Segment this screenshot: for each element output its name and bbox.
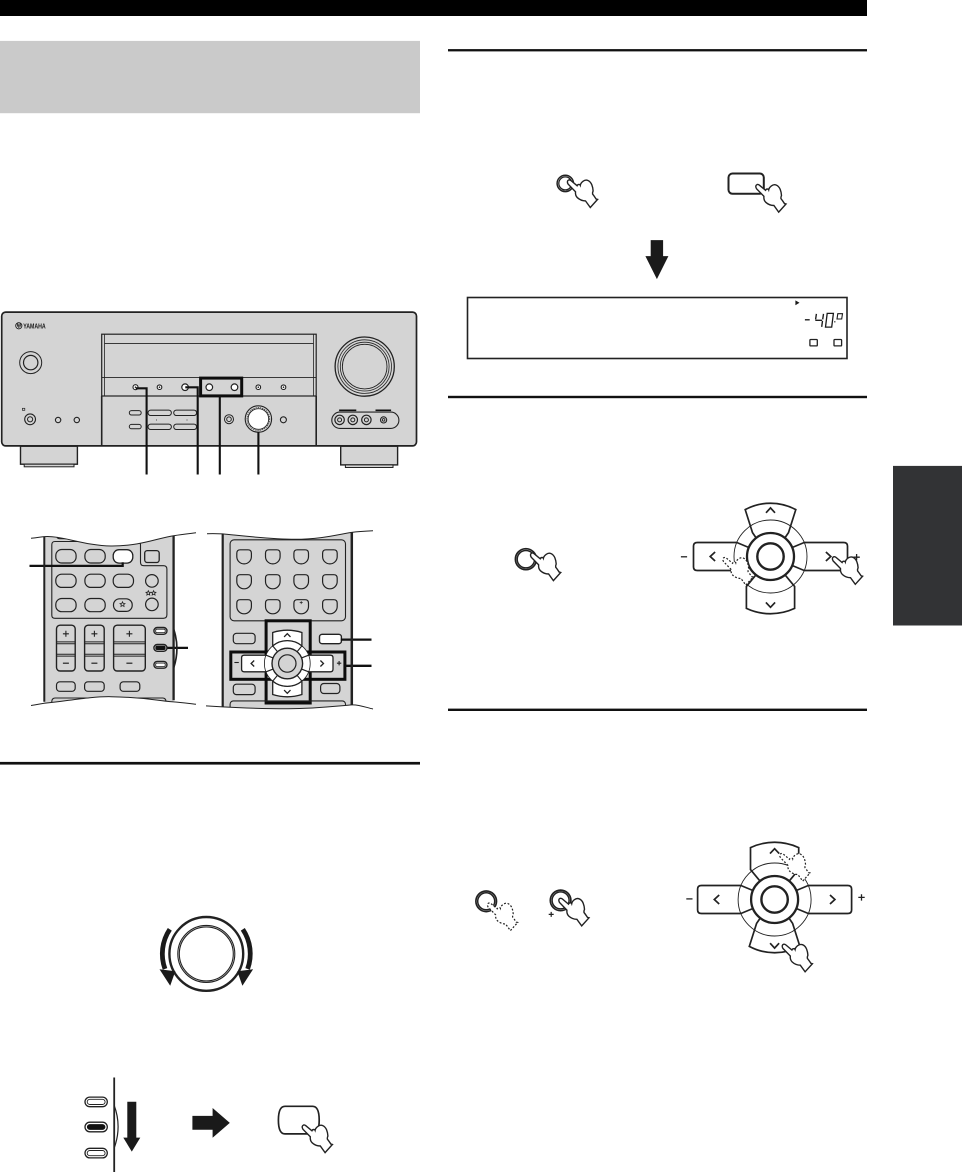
svg-text:YAMAHA: YAMAHA bbox=[23, 322, 46, 331]
